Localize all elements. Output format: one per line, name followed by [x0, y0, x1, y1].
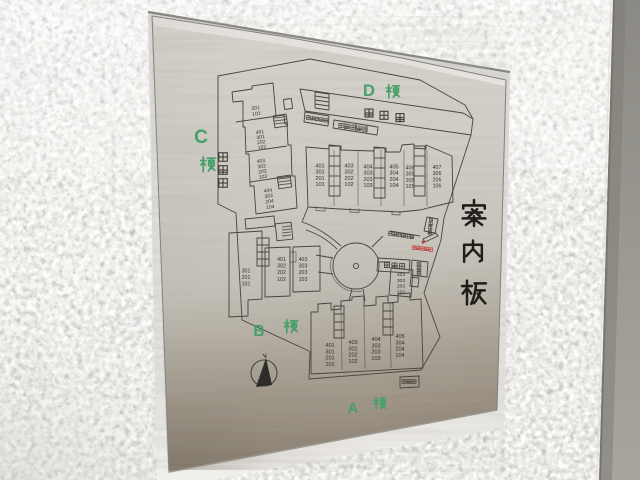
svg-text:401: 401 — [277, 257, 286, 263]
svg-text:303: 303 — [363, 171, 372, 177]
svg-text:302: 302 — [277, 264, 286, 270]
svg-text:204: 204 — [389, 177, 398, 183]
svg-text:407: 407 — [433, 165, 442, 171]
svg-text:303: 303 — [371, 343, 380, 349]
svg-text:203: 203 — [371, 350, 380, 356]
svg-text:403: 403 — [397, 272, 405, 278]
svg-text:104: 104 — [389, 183, 398, 189]
svg-text:103: 103 — [397, 289, 405, 295]
svg-text:104: 104 — [266, 204, 275, 211]
svg-text:101: 101 — [315, 182, 324, 188]
svg-text:305: 305 — [406, 172, 415, 178]
svg-text:406: 406 — [406, 166, 415, 172]
svg-text:203: 203 — [299, 270, 308, 276]
svg-text:102: 102 — [344, 182, 353, 188]
svg-text:404: 404 — [363, 165, 372, 171]
svg-text:306: 306 — [433, 171, 442, 177]
svg-text:302: 302 — [348, 346, 357, 352]
svg-text:304: 304 — [389, 171, 398, 177]
svg-text:403: 403 — [344, 164, 353, 170]
svg-text:202: 202 — [348, 353, 357, 359]
svg-text:C: C — [194, 127, 208, 148]
svg-text:303: 303 — [397, 278, 405, 284]
svg-text:404: 404 — [371, 337, 380, 343]
svg-text:303: 303 — [299, 264, 308, 270]
svg-text:102: 102 — [348, 359, 357, 365]
svg-text:304: 304 — [395, 340, 404, 346]
svg-text:103: 103 — [371, 356, 380, 362]
svg-text:301: 301 — [242, 269, 251, 275]
svg-text:B: B — [253, 323, 264, 340]
svg-text:403: 403 — [299, 257, 308, 263]
svg-text:405: 405 — [395, 334, 404, 340]
svg-text:403: 403 — [348, 340, 357, 346]
svg-text:205: 205 — [406, 178, 415, 184]
svg-text:201: 201 — [325, 356, 334, 362]
svg-text:204: 204 — [395, 347, 404, 353]
svg-text:203: 203 — [397, 284, 405, 290]
svg-text:201: 201 — [315, 176, 324, 182]
svg-text:301: 301 — [315, 170, 324, 176]
svg-text:101: 101 — [325, 362, 334, 368]
svg-text:D: D — [363, 82, 375, 100]
svg-text:101: 101 — [252, 111, 261, 118]
svg-text:401: 401 — [325, 343, 334, 349]
svg-text:104: 104 — [395, 353, 404, 359]
svg-text:206: 206 — [433, 177, 442, 183]
svg-text:102: 102 — [258, 144, 267, 151]
svg-text:201: 201 — [242, 275, 251, 281]
svg-text:A: A — [348, 401, 359, 417]
svg-text:105: 105 — [406, 184, 415, 190]
svg-text:106: 106 — [433, 184, 442, 190]
svg-text:103: 103 — [299, 277, 308, 283]
svg-text:302: 302 — [344, 170, 353, 176]
svg-text:101: 101 — [242, 282, 251, 288]
svg-text:405: 405 — [389, 165, 398, 171]
svg-text:202: 202 — [277, 270, 286, 276]
svg-text:203: 203 — [363, 177, 372, 183]
svg-text:102: 102 — [277, 277, 286, 283]
svg-text:202: 202 — [344, 176, 353, 182]
svg-text:103: 103 — [259, 174, 268, 181]
svg-text:401: 401 — [315, 164, 324, 170]
svg-text:301: 301 — [325, 349, 334, 355]
svg-text:103: 103 — [363, 183, 372, 189]
